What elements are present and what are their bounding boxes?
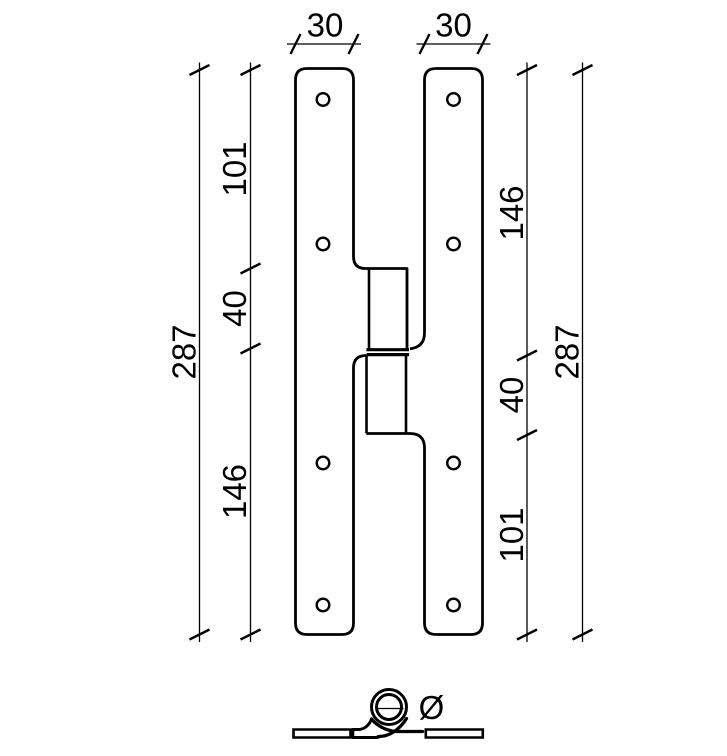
dimension-label-width-left: 30 <box>307 7 344 44</box>
dimension-label-left-top: 101 <box>216 141 253 196</box>
dimension-label-right-bottom: 101 <box>493 507 530 562</box>
dimension-label-right-middle: 40 <box>493 377 530 414</box>
dimension-label-right-overall: 287 <box>549 324 586 379</box>
dimension-label-width-right: 30 <box>435 7 472 44</box>
screw-hole <box>317 93 330 106</box>
pin-diameter-symbol: Ø <box>419 689 445 726</box>
hinge-technical-drawing: 30 30 287 101 40 146 <box>0 0 727 756</box>
screw-hole <box>447 599 460 612</box>
screw-hole <box>447 93 460 106</box>
dimension-label-left-bottom: 146 <box>216 464 253 519</box>
screw-hole <box>447 238 460 251</box>
drawing-background <box>0 0 727 756</box>
screw-hole <box>317 238 330 251</box>
dimension-label-left-overall: 287 <box>166 324 203 379</box>
screw-hole <box>317 599 330 612</box>
screw-hole <box>447 457 460 470</box>
technical-drawing-page: 30 30 287 101 40 146 <box>0 0 727 756</box>
dimension-label-left-middle: 40 <box>216 290 253 327</box>
dimension-label-right-top: 146 <box>493 185 530 240</box>
screw-hole <box>317 457 330 470</box>
